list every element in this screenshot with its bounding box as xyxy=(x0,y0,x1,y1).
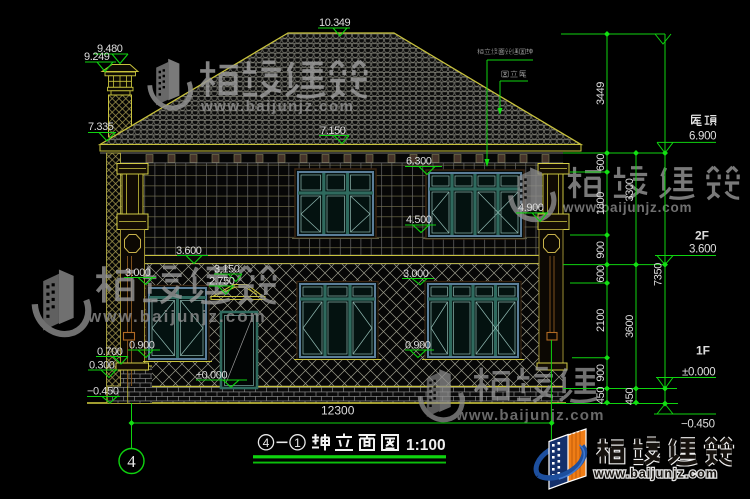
svg-text:0.300: 0.300 xyxy=(89,360,115,372)
svg-text:7.335: 7.335 xyxy=(88,121,114,133)
svg-text:7350: 7350 xyxy=(653,263,665,286)
svg-text:7.150: 7.150 xyxy=(320,125,346,137)
svg-text:450: 450 xyxy=(595,387,607,404)
svg-text:2F: 2F xyxy=(695,229,709,243)
svg-text:3.000: 3.000 xyxy=(125,267,151,279)
svg-text:1:100: 1:100 xyxy=(406,437,446,454)
svg-text:3.600: 3.600 xyxy=(689,244,716,256)
svg-text:10.349: 10.349 xyxy=(319,17,351,29)
svg-text:2100: 2100 xyxy=(595,309,607,332)
svg-text:www.baijunjz.com: www.baijunjz.com xyxy=(200,98,354,115)
svg-text:6.900: 6.900 xyxy=(689,131,716,143)
svg-text:3449: 3449 xyxy=(595,82,607,105)
svg-text:−0.450: −0.450 xyxy=(87,386,119,398)
svg-text:9.249: 9.249 xyxy=(84,51,110,63)
svg-text:www.baijunjz.com: www.baijunjz.com xyxy=(593,467,718,481)
svg-text:450: 450 xyxy=(624,388,636,405)
svg-text:4.500: 4.500 xyxy=(406,214,432,226)
svg-text:600: 600 xyxy=(595,265,607,282)
svg-text:www.baijunjz.com: www.baijunjz.com xyxy=(455,407,605,424)
svg-text:6.300: 6.300 xyxy=(406,156,432,168)
svg-text:600: 600 xyxy=(595,154,607,171)
svg-text:1: 1 xyxy=(294,436,301,450)
svg-text:0.900: 0.900 xyxy=(405,340,431,352)
svg-text:3300: 3300 xyxy=(624,178,636,201)
svg-text:4: 4 xyxy=(263,436,270,450)
svg-text:1800: 1800 xyxy=(595,192,607,215)
svg-text:±0.000: ±0.000 xyxy=(682,367,715,379)
svg-text:900: 900 xyxy=(595,364,607,381)
svg-text:−0.450: −0.450 xyxy=(681,419,715,431)
svg-text:2.750: 2.750 xyxy=(209,276,235,288)
svg-text:3.600: 3.600 xyxy=(176,245,202,257)
svg-text:4: 4 xyxy=(127,452,136,471)
svg-text:0.700: 0.700 xyxy=(97,346,123,358)
svg-text:12300: 12300 xyxy=(321,404,355,418)
svg-text:3600: 3600 xyxy=(624,315,636,338)
svg-text:0.900: 0.900 xyxy=(129,340,155,352)
svg-text:900: 900 xyxy=(595,241,607,258)
svg-text:1F: 1F xyxy=(696,344,710,358)
svg-text:www.baijunjz.com: www.baijunjz.com xyxy=(87,307,267,326)
svg-text:±0.000: ±0.000 xyxy=(196,370,227,382)
svg-text:3.000: 3.000 xyxy=(403,268,429,280)
svg-text:3.150: 3.150 xyxy=(214,264,240,276)
svg-text:4.900: 4.900 xyxy=(518,202,544,214)
